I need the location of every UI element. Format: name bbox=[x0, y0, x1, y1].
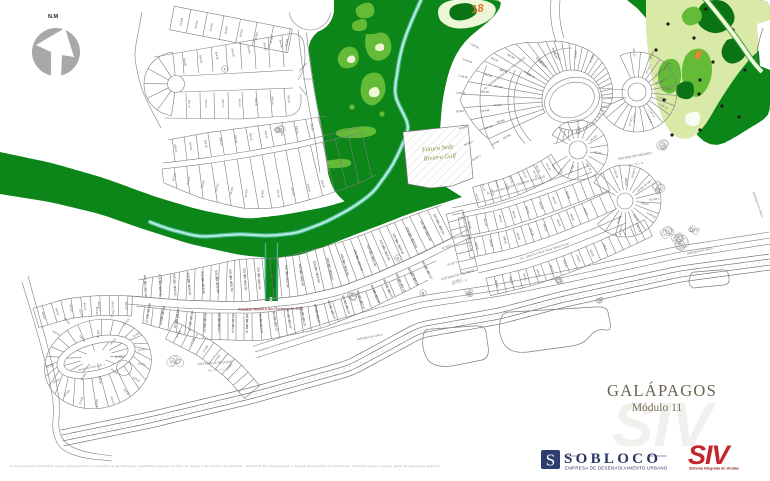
svg-text:N.M: N.M bbox=[48, 14, 59, 20]
svg-text:339.30: 339.30 bbox=[115, 355, 124, 359]
svg-text:D: D bbox=[397, 256, 400, 261]
svg-text:S: S bbox=[546, 451, 555, 470]
svg-text:A incorporacao imobiliaria des: A incorporacao imobiliaria deste empreen… bbox=[10, 464, 440, 468]
svg-text:483.07: 483.07 bbox=[231, 319, 235, 328]
svg-text:694.07: 694.07 bbox=[83, 303, 88, 312]
svg-text:626.50: 626.50 bbox=[201, 278, 206, 287]
svg-text:626.50: 626.50 bbox=[187, 279, 192, 288]
svg-text:626.50: 626.50 bbox=[276, 190, 280, 199]
svg-text:850.00: 850.00 bbox=[270, 96, 275, 105]
svg-text:448.60: 448.60 bbox=[624, 177, 628, 185]
svg-text:339.30: 339.30 bbox=[96, 330, 100, 339]
svg-text:Sistema Integrado de Vendas: Sistema Integrado de Vendas bbox=[689, 467, 739, 471]
svg-text:850.00: 850.00 bbox=[221, 99, 225, 108]
svg-text:483.07: 483.07 bbox=[217, 318, 221, 327]
svg-text:626.50: 626.50 bbox=[229, 276, 234, 285]
svg-text:SIV: SIV bbox=[688, 440, 732, 470]
svg-text:626.50: 626.50 bbox=[158, 281, 162, 290]
svg-text:483.07: 483.07 bbox=[259, 318, 264, 327]
svg-text:626.50: 626.50 bbox=[243, 275, 248, 284]
svg-text:626.50: 626.50 bbox=[215, 277, 220, 286]
svg-text:850.00: 850.00 bbox=[204, 100, 208, 109]
svg-text:B: B bbox=[422, 291, 425, 296]
svg-text:626.50: 626.50 bbox=[172, 280, 176, 289]
svg-text:850.00: 850.00 bbox=[254, 98, 259, 107]
svg-text:626.50: 626.50 bbox=[143, 281, 147, 290]
svg-text:694.07: 694.07 bbox=[124, 302, 128, 311]
svg-text:GALÁPAGOS: GALÁPAGOS bbox=[607, 381, 717, 400]
svg-text:626.50: 626.50 bbox=[285, 272, 290, 281]
svg-text:EMPRESA DE DESENVOLVIMENTO URB: EMPRESA DE DESENVOLVIMENTO URBANO bbox=[565, 466, 668, 471]
svg-text:624.02: 624.02 bbox=[95, 307, 99, 315]
svg-text:483.07: 483.07 bbox=[203, 318, 208, 327]
svg-text:833.00: 833.00 bbox=[573, 51, 577, 60]
svg-text:624.02: 624.02 bbox=[95, 399, 99, 407]
svg-text:490.38: 490.38 bbox=[577, 126, 581, 134]
svg-text:626.50: 626.50 bbox=[271, 273, 276, 282]
svg-text:850.00: 850.00 bbox=[187, 100, 191, 109]
svg-text:Módulo 11: Módulo 11 bbox=[632, 402, 683, 414]
svg-text:850.00: 850.00 bbox=[287, 95, 292, 104]
svg-text:626.50: 626.50 bbox=[257, 274, 262, 283]
svg-text:483.07: 483.07 bbox=[245, 319, 249, 328]
svg-text:850.00: 850.00 bbox=[238, 99, 242, 108]
svg-text:1.036.85: 1.036.85 bbox=[455, 91, 466, 96]
svg-text:626.50: 626.50 bbox=[260, 190, 264, 198]
svg-text:864.89: 864.89 bbox=[493, 103, 502, 107]
